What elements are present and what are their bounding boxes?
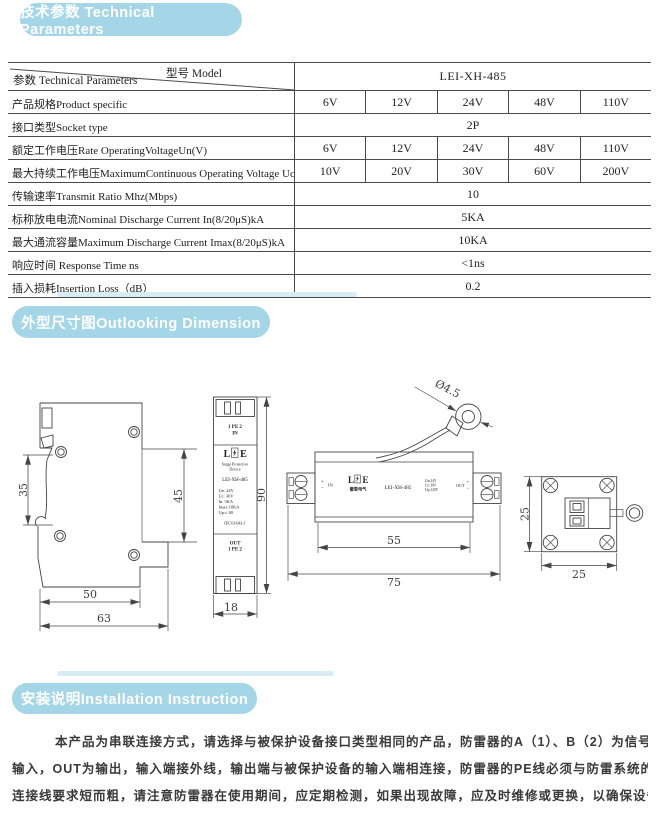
svg-text:Un:24V: Un:24V [425, 479, 437, 483]
front-specs: Un: 24V Uc: 30V In: 5KA Imax:10KA Up:≤ 6… [219, 488, 241, 515]
front-out-label: OUT [230, 542, 242, 547]
out-plus: + [467, 479, 470, 484]
row-value: 12V [366, 137, 437, 159]
header-highlight-band [57, 671, 334, 676]
row-value: 6V [295, 137, 366, 159]
brand-chinese: 雷恩电气 [350, 486, 368, 493]
dim-label-45: 45 [172, 489, 185, 503]
row-value: <1ns [295, 252, 651, 274]
dim-label-18: 18 [224, 601, 238, 614]
brand-logo: L E [348, 475, 369, 485]
row-value: 2P [295, 114, 651, 136]
corner-model-label: 型号 Model [166, 65, 222, 81]
mounting-hole-icon [55, 427, 140, 561]
brand-logo: L E [224, 448, 248, 460]
table-row: 响应时间 Response Time ns <1ns [8, 252, 651, 275]
row-label: 额定工作电压Rate OperatingVoltageUn(V) [8, 137, 295, 159]
row-value: 24V [438, 137, 509, 159]
table-row: 标称放电电流Nominal Discharge Current In(8/20μ… [8, 206, 651, 229]
lightning-bolt-icon [233, 449, 237, 457]
row-label: 响应时间 Response Time ns [8, 252, 295, 274]
dim-label-55: 55 [387, 534, 401, 547]
svg-text:E: E [240, 449, 247, 460]
row-label: 最大持续工作电压MaximumContinuous Operating Volt… [8, 160, 295, 182]
front-in-label: IN [232, 432, 238, 437]
out-minus: − [467, 486, 470, 491]
svg-text:Uc:30V: Uc:30V [425, 484, 437, 488]
out-label: OUT [456, 483, 465, 488]
svg-text:E: E [362, 475, 368, 485]
dim-label-63: 63 [97, 612, 111, 625]
svg-text:L: L [348, 475, 354, 485]
front-standard: IEC61643-1 [224, 521, 246, 526]
row-label: 最大通流容量Maximum Discharge Current Imax(8/2… [8, 229, 295, 251]
lightning-bolt-icon [356, 476, 359, 483]
dim-label-25-horizontal: 25 [572, 568, 586, 581]
end-view: 25 25 [519, 477, 643, 581]
row-value: 10KA [295, 229, 651, 251]
row-value: 200V [581, 160, 651, 182]
right-terminal-block [473, 473, 501, 504]
svg-text:Uc: 30V: Uc: 30V [219, 494, 235, 499]
dim-label-90: 90 [255, 488, 268, 502]
row-value: 110V [581, 91, 651, 113]
front-view: 1 PE 2 IN L E Surge Protective Device LE… [214, 397, 272, 618]
svg-text:In: 5KA: In: 5KA [219, 499, 234, 504]
table-row: 产品规格Product specific 6V 12V 24V 48V 110V [8, 91, 651, 114]
dimension-drawings: 35 45 50 63 1 PE 2 IN L [0, 350, 659, 662]
ground-wire [376, 404, 481, 462]
top-view: + − IN L E 雷恩电气 LEI-XH-485 Un:24V Uc:30V… [287, 377, 501, 589]
top-model: LEI-XH-485 [385, 485, 412, 491]
front-in-terminals-label: 1 PE 2 [228, 425, 242, 430]
row-value: 24V [438, 91, 509, 113]
table-header-row: 型号 Model 参数 Technical Parameters LEI-XH-… [8, 63, 651, 91]
installation-line: 本产品为串联连接方式，请选择与被保护设备接口类型相同的产品，防雷器的A（1）、B… [12, 729, 648, 756]
top-specs: Un:24V Uc:30V Up:120V [425, 479, 439, 492]
table-row: 最大通流容量Maximum Discharge Current Imax(8/2… [8, 229, 651, 252]
table-row: 最大持续工作电压MaximumContinuous Operating Volt… [8, 160, 651, 183]
end-ring-lug [610, 505, 643, 522]
front-model: LEI-XH-485 [222, 478, 248, 483]
end-terminal-block [565, 498, 610, 529]
row-value: 20V [366, 160, 437, 182]
left-terminal-block [287, 473, 315, 504]
dim-label-75: 75 [387, 576, 401, 589]
table-corner-cell: 型号 Model 参数 Technical Parameters [8, 63, 295, 90]
dim-label-35: 35 [17, 483, 30, 497]
table-row: 传输速率Transmit Ratio Mhz(Mbps) 10 [8, 183, 651, 206]
in-plus: + [321, 480, 324, 485]
in-minus: − [321, 486, 324, 491]
in-label: IN [328, 483, 333, 488]
row-label: 接口类型Socket type [8, 114, 295, 136]
corner-parameters-label: 参数 Technical Parameters [13, 72, 137, 88]
dim-label-50: 50 [83, 588, 97, 601]
header-highlight-band [57, 292, 357, 297]
installation-line: 连接线要求短而粗，请注意防雷器在使用期间，应定期检测，如果出现故障，应及时维修或… [12, 783, 648, 810]
datasheet-page: 技术参数 Technical Parameters 型号 Model 参数 Te… [0, 0, 659, 830]
row-label: 产品规格Product specific [8, 91, 295, 113]
model-number: LEI-XH-485 [295, 63, 651, 90]
table-row: 接口类型Socket type 2P [8, 114, 651, 137]
svg-text:Up:≤ 60: Up:≤ 60 [219, 510, 234, 515]
front-out-terminals-label: 1 PE 2 [228, 548, 242, 553]
row-value: 30V [438, 160, 509, 182]
installation-paragraph: 本产品为串联连接方式，请选择与被保护设备接口类型相同的产品，防雷器的A（1）、B… [12, 729, 648, 810]
row-value: 10V [295, 160, 366, 182]
row-value: 60V [509, 160, 580, 182]
row-value: 48V [509, 137, 580, 159]
row-value: 5KA [295, 206, 651, 228]
side-view: 35 45 50 63 [17, 403, 197, 631]
installation-line: 输入，OUT为输出，输入端接外线，输出端与被保护设备的输入端相连接，防雷器的PE… [12, 756, 648, 783]
dim-label-ring-diameter: Ø4.5 [433, 377, 463, 401]
section-title-outlooking-dimension: 外型尺寸图Outlooking Dimension [12, 306, 270, 338]
front-sub2: Device [229, 467, 241, 472]
svg-text:Imax:10KA: Imax:10KA [219, 505, 241, 510]
corner-screw-icon [543, 478, 614, 549]
row-value: 10 [295, 183, 651, 205]
section-title-installation-instruction: 安装说明Installation Instruction [12, 683, 257, 714]
dim-label-25-vertical: 25 [519, 507, 532, 521]
row-label: 传输速率Transmit Ratio Mhz(Mbps) [8, 183, 295, 205]
spec-table: 型号 Model 参数 Technical Parameters LEI-XH-… [8, 62, 651, 298]
table-row: 额定工作电压Rate OperatingVoltageUn(V) 6V 12V … [8, 137, 651, 160]
svg-text:Un: 24V: Un: 24V [219, 488, 235, 493]
svg-text:Up:120V: Up:120V [425, 488, 439, 492]
row-value: 48V [509, 91, 580, 113]
row-value: 12V [366, 91, 437, 113]
row-label: 标称放电电流Nominal Discharge Current In(8/20μ… [8, 206, 295, 228]
svg-text:L: L [224, 449, 231, 460]
row-value: 6V [295, 91, 366, 113]
section-title-technical-parameters: 技术参数 Technical Parameters [20, 3, 242, 36]
row-value: 110V [581, 137, 651, 159]
